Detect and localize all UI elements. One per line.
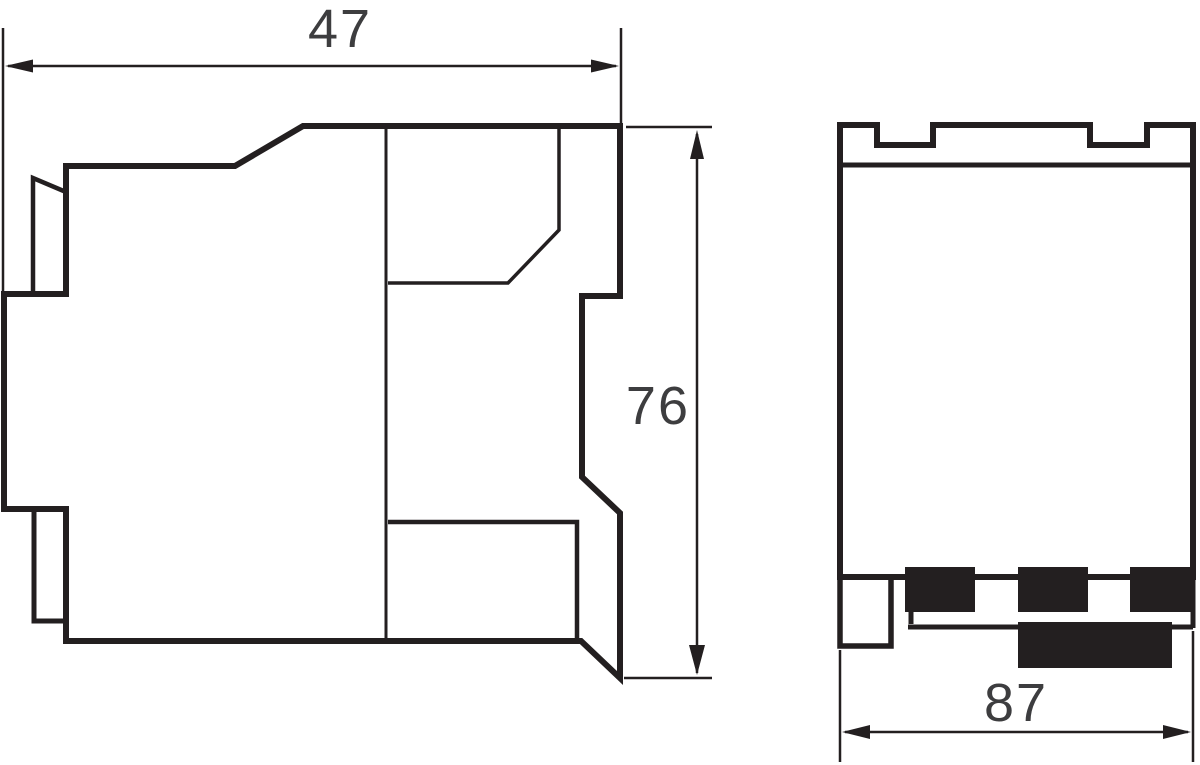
- dim-76-label: 76: [626, 376, 690, 436]
- dimension-47: [3, 28, 621, 292]
- arrowhead-left-icon: [842, 725, 870, 739]
- side-view: [4, 126, 620, 678]
- front-view-outline: [840, 125, 1193, 577]
- arrowhead-down-icon: [689, 645, 705, 675]
- din-clip-lower: [34, 512, 64, 621]
- terminal-blocks: [905, 567, 1194, 668]
- terminal-bar-bottom: [1018, 622, 1172, 668]
- arrowhead-left-icon: [5, 60, 33, 73]
- arrowhead-right-icon: [1163, 725, 1191, 739]
- dimension-drawing-svg: 47 76 87: [0, 0, 1200, 765]
- side-view-outline: [4, 126, 620, 678]
- din-clip-upper: [33, 178, 66, 294]
- front-bottom-left-box: [840, 577, 891, 646]
- technical-drawing-canvas: 47 76 87: [0, 0, 1200, 765]
- terminal-block-2: [1018, 567, 1088, 612]
- arrowhead-right-icon: [591, 60, 619, 73]
- inner-contour-upper: [388, 129, 559, 283]
- terminal-block-3: [1130, 567, 1194, 612]
- arrowhead-up-icon: [690, 130, 704, 159]
- terminal-block-1: [905, 567, 975, 612]
- inner-contour-lower: [388, 522, 577, 639]
- dim-47-label: 47: [308, 0, 372, 59]
- dim-87-label: 87: [984, 673, 1048, 733]
